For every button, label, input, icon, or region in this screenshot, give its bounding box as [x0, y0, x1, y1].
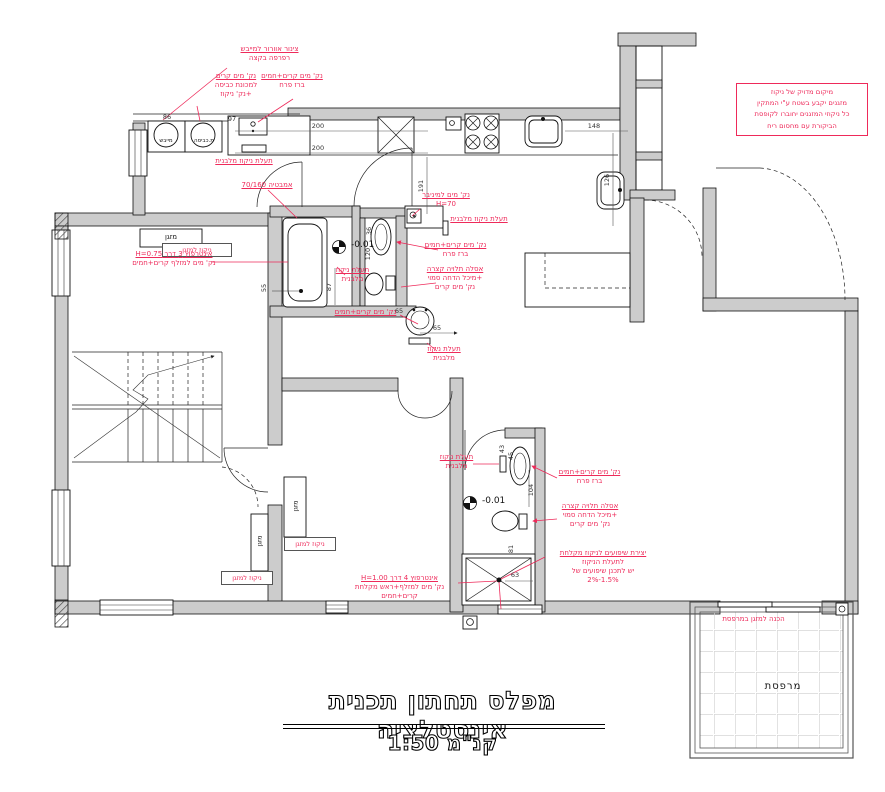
ac-label-left: מזגן	[256, 514, 264, 569]
annotation-minibar: נק' מים למיניבר H=70	[405, 191, 487, 209]
window-left-1	[52, 230, 70, 296]
dim-81: 81	[507, 545, 515, 553]
window-bottom-2	[326, 601, 348, 613]
annotation-ac-drain-1: ניקוז למזגן	[284, 537, 336, 551]
annotation-sink-point: נק' מים קרים+חמים	[328, 308, 403, 317]
dim-200a: 200	[312, 122, 324, 130]
stove	[465, 114, 499, 153]
annotation-dryer-vent: צינור אוורור למייבש רפרפה בקצה	[222, 45, 317, 63]
terrace	[690, 602, 853, 758]
dryer-label: מייבש	[149, 138, 183, 144]
ac-label-right: מזגן	[292, 479, 300, 534]
window-bottom-1	[100, 600, 173, 615]
shower	[462, 554, 542, 614]
level-marker-2: -0.01	[482, 496, 524, 506]
dim-55: 55	[260, 284, 268, 292]
annotation-ac-drain-2: ניקוז למזגן	[221, 571, 273, 585]
doors	[222, 148, 845, 507]
dim-36: 36	[365, 227, 373, 235]
island-counter	[525, 253, 630, 307]
outlet-box	[446, 117, 461, 130]
annotation-channel-washer: תעלת ניקוז מלבנית	[184, 157, 304, 166]
dim-45: 45	[507, 452, 515, 460]
annotation-channel-wc: תעלת ניקוז מלבנית	[445, 215, 513, 224]
annotation-shower-slopes: יצירת שיפועים לניקוז מקלחת לתעלת הניקוז …	[538, 549, 668, 585]
bath2-toilet	[492, 511, 518, 531]
annotation-tap-wc: נק' מים קרים+חמים ברז פרח	[408, 241, 503, 259]
annotation-terrace-ac: הכנה למזגן במרפסת	[706, 615, 801, 624]
inspection-box	[463, 616, 477, 629]
dim-97: 97	[228, 115, 236, 123]
fridge-niche	[378, 117, 414, 153]
window-left-2	[52, 490, 70, 566]
annotation-bathtub: אמבטיה 70/160	[228, 181, 306, 190]
floor-plan: 86 97 200 200 148 126 191 87 55 36 120 6…	[0, 0, 885, 792]
level-symbol-2	[464, 497, 477, 510]
level-marker-1: -0.01	[351, 240, 393, 250]
annotation-toilet-bath2: אסלה תלויה קצרה +מיכל הדחה סמוי נק' מים …	[539, 502, 641, 529]
annotation-toilet-wc: אסלה תלויה קצרה +מיכל הדחה סמוי נק' מים …	[405, 265, 505, 292]
dim-200b: 200	[312, 144, 324, 152]
annotation-kitchen-tap: נק' מים קרים+חמים ברז פרח	[256, 72, 328, 90]
dim-104: 104	[527, 484, 535, 496]
dim-126: 126	[603, 174, 611, 186]
plan-scale: קנ"מ 1:50	[370, 731, 515, 755]
staircase	[72, 352, 222, 462]
washer-label: מ.כביסה	[186, 138, 222, 144]
hall-sink	[406, 307, 434, 344]
kitchen-sink	[525, 116, 562, 147]
level-symbol-1	[333, 241, 346, 254]
minibar-counter	[405, 206, 443, 228]
annotation-channel-bath2: תעלת ניקוז מלבנית	[428, 453, 485, 471]
dim-148: 148	[588, 122, 600, 130]
annotation-tap-bath2: נק' מים קרים+חמים ברז פרח	[541, 468, 638, 486]
ac-label-top: מזגן	[140, 233, 202, 241]
dim-63: 63	[511, 571, 519, 579]
annotation-channel-sink: תעלת ניקוז מלבנית	[414, 345, 474, 363]
dim-65b: 65	[433, 324, 441, 332]
annotation-interpuz3: אינטרפוץ 3 דרך H=0.75 נק' מים למזלף קרים…	[88, 250, 260, 268]
annotation-channel-tub: תעלת ניקוז מלבנית	[325, 266, 380, 284]
terrace-label: מרפסת	[757, 681, 809, 692]
lower-bathroom	[462, 447, 542, 614]
terrace-door	[718, 602, 772, 607]
ac-drainage-note: מיקום מדויק של ניקוז מזגנים יקבע בשטח ע"…	[736, 83, 868, 136]
dim-43: 43	[498, 445, 506, 453]
window-utility-left	[129, 130, 147, 176]
title-underline	[283, 724, 605, 729]
dim-86: 86	[163, 113, 171, 121]
annotation-interpuz4: אינטרפוץ 4 דרך H=1.00 נק' מים למזלף+ראש …	[336, 574, 463, 601]
